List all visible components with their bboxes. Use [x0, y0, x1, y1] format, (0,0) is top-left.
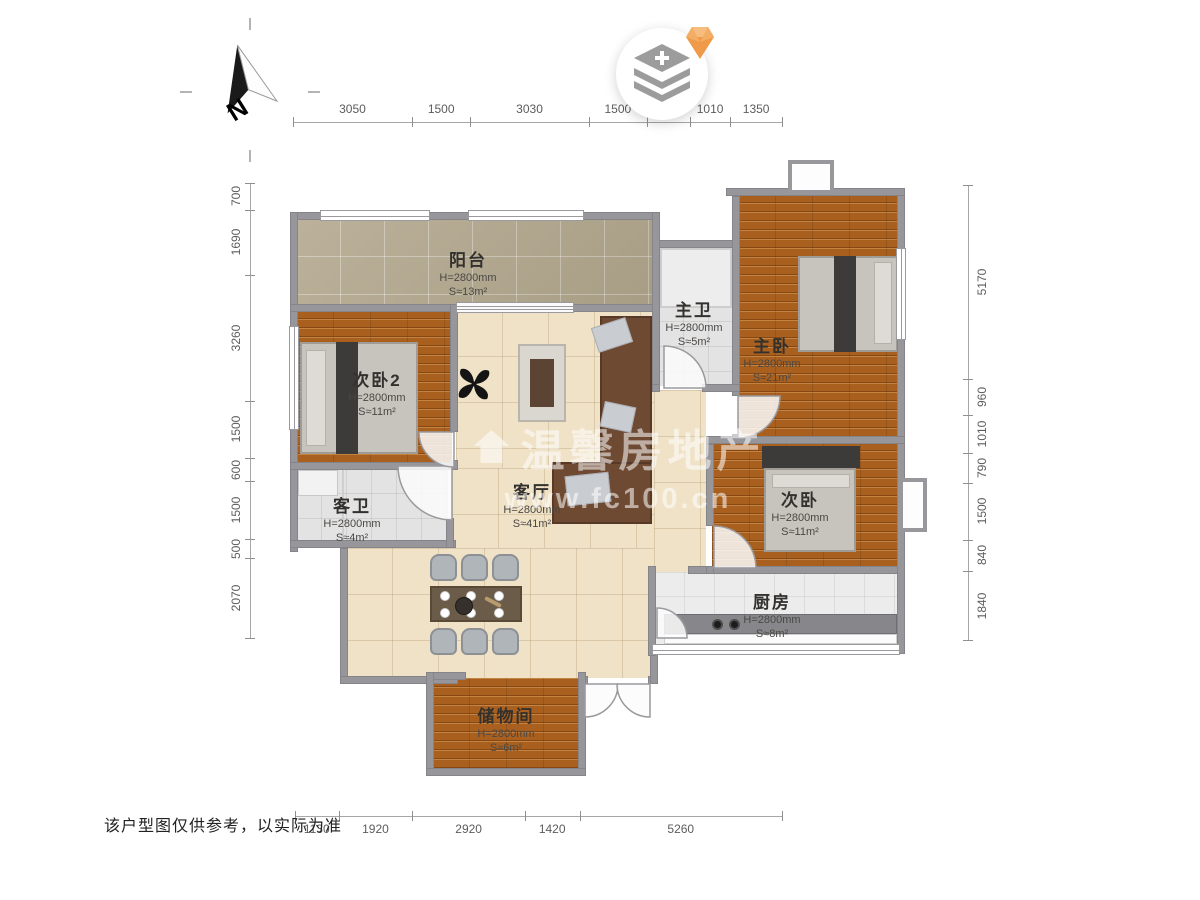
dimension-label: 1420: [539, 822, 566, 836]
ruler-tick: [245, 183, 255, 184]
room-label-guest-bath: 客卫 H=2800mm S≈4m²: [323, 492, 380, 546]
room-area: S≈11m²: [348, 405, 405, 419]
room-label-storage: 储物间 H=2800mm S≈6m²: [477, 702, 534, 756]
room-name: 主卧: [743, 332, 800, 357]
dining-chair: [492, 554, 519, 581]
dimension-label: 3260: [229, 324, 243, 351]
ruler-tick: [412, 117, 413, 127]
room-name: 厨房: [743, 588, 800, 613]
window: [289, 326, 299, 430]
ruler-tick: [580, 811, 581, 821]
ruler-tick: [782, 117, 783, 127]
room-height: H=2800mm: [743, 357, 800, 371]
stove-burner: [729, 619, 740, 630]
room-name: 客卫: [323, 492, 380, 517]
diamond-icon: [683, 24, 717, 62]
dimension-label: 840: [975, 545, 989, 565]
dimension-label: 1500: [975, 498, 989, 525]
dimension-label: 600: [229, 460, 243, 480]
north-compass: N: [172, 14, 327, 164]
room-name: 主卫: [665, 296, 722, 321]
coffee-table: [530, 359, 554, 407]
dining-chair: [492, 628, 519, 655]
dining-chair: [461, 628, 488, 655]
disclaimer-text: 该户型图仅供参考，以实际为准: [104, 812, 342, 836]
dimension-label: 960: [975, 387, 989, 407]
room-area: S≈21m²: [743, 371, 800, 385]
ruler-tick: [589, 117, 590, 127]
ruler-tick: [245, 481, 255, 482]
ruler-tick: [245, 210, 255, 211]
room-label-balcony: 阳台 H=2800mm S≈13m²: [439, 246, 496, 300]
ruler-tick: [245, 638, 255, 639]
compass-n-label: N: [221, 92, 253, 127]
ceiling-fan-icon: [452, 362, 496, 406]
room-height: H=2800mm: [503, 503, 560, 517]
door-entry-left: [585, 684, 618, 717]
room-label-master-bedroom: 主卧 H=2800mm S≈21m²: [743, 332, 800, 386]
ruler-tick: [245, 539, 255, 540]
ruler-line-right: [968, 185, 969, 640]
window: [896, 248, 906, 340]
bed-bedroom2-pillow: [306, 350, 326, 446]
ac-platform-right: [899, 478, 927, 532]
room-label-living: 客厅 H=2800mm S≈41m²: [503, 478, 560, 532]
fruit-bowl: [455, 597, 473, 615]
ruler-tick: [782, 811, 783, 821]
room-name: 客厅: [503, 478, 560, 503]
dimension-label: 1500: [229, 416, 243, 443]
room-height: H=2800mm: [665, 321, 722, 335]
dimension-label: 1500: [229, 497, 243, 524]
ruler-tick: [730, 117, 731, 127]
plate: [440, 608, 450, 618]
room-height: H=2800mm: [743, 613, 800, 627]
room-area: S≈13m²: [439, 285, 496, 299]
dimension-label: 1690: [229, 229, 243, 256]
dimension-label: 500: [229, 539, 243, 559]
ruler-tick: [963, 640, 973, 641]
room-name: 次卧2: [348, 366, 405, 391]
room-name: 阳台: [439, 246, 496, 271]
ruler-tick: [963, 483, 973, 484]
room-name: 储物间: [477, 702, 534, 727]
plate: [440, 591, 450, 601]
ruler-tick: [963, 571, 973, 572]
ruler-line-top: [293, 122, 782, 123]
plate: [494, 591, 504, 601]
window-kitchen: [652, 644, 900, 655]
dimension-label: 1010: [975, 421, 989, 448]
dimension-label: 3030: [516, 102, 543, 116]
room-area: S≈4m²: [323, 531, 380, 545]
ruler-tick: [963, 453, 973, 454]
room-height: H=2800mm: [771, 511, 828, 525]
dimension-label: 1350: [743, 102, 770, 116]
bed-master-pillow: [874, 262, 892, 344]
dimension-label: 700: [229, 186, 243, 206]
dimension-label: 2920: [455, 822, 482, 836]
ruler-tick: [963, 185, 973, 186]
dimension-label: 5260: [667, 822, 694, 836]
room-height: H=2800mm: [323, 517, 380, 531]
hallway-floor: [654, 390, 706, 572]
room-area: S≈8m²: [743, 627, 800, 641]
ruler-tick: [245, 401, 255, 402]
ruler-tick: [963, 415, 973, 416]
dimension-label: 1920: [362, 822, 389, 836]
ruler-tick: [245, 558, 255, 559]
bed-second-headboard: [762, 446, 860, 468]
ruler-tick: [245, 458, 255, 459]
room-area: S≈41m²: [503, 517, 560, 531]
ruler-line-bottom: [295, 816, 782, 817]
sofa-pillow: [565, 472, 612, 506]
door-entry-right: [617, 684, 650, 717]
floorplan-page: { "page": { "disclaimer": "该户型图仅供参考，以实际为…: [0, 0, 1200, 900]
dining-chair: [461, 554, 488, 581]
ruler-tick: [470, 117, 471, 127]
plate: [494, 608, 504, 618]
room-area: S≈6m²: [477, 741, 534, 755]
room-label-kitchen: 厨房 H=2800mm S≈8m²: [743, 588, 800, 642]
room-label-bedroom2: 次卧2 H=2800mm S≈11m²: [348, 366, 405, 420]
room-label-second-bedroom: 次卧 H=2800mm S≈11m²: [771, 486, 828, 540]
room-height: H=2800mm: [439, 271, 496, 285]
room-label-master-bath: 主卫 H=2800mm S≈5m²: [665, 296, 722, 350]
room-height: H=2800mm: [477, 727, 534, 741]
room-area: S≈11m²: [771, 525, 828, 539]
ruler-tick: [412, 811, 413, 821]
dimension-label: 1500: [428, 102, 455, 116]
dimension-label: 790: [975, 458, 989, 478]
room-area: S≈5m²: [665, 335, 722, 349]
room-height: H=2800mm: [348, 391, 405, 405]
ruler-tick: [525, 811, 526, 821]
sliding-door-balcony: [456, 302, 574, 313]
dimension-label: 3050: [339, 102, 366, 116]
ruler-line-left: [250, 183, 251, 638]
window: [468, 210, 584, 221]
ruler-tick: [963, 379, 973, 380]
ruler-tick: [245, 275, 255, 276]
flue-box-top: [788, 160, 834, 194]
dining-chair: [430, 628, 457, 655]
dimension-label: 5170: [975, 269, 989, 296]
window: [320, 210, 430, 221]
dining-chair: [430, 554, 457, 581]
bed-master-runner: [834, 256, 856, 352]
ruler-tick: [963, 540, 973, 541]
stove-burner: [712, 619, 723, 630]
room-name: 次卧: [771, 486, 828, 511]
dimension-label: 1840: [975, 592, 989, 619]
dimension-label: 2070: [229, 585, 243, 612]
